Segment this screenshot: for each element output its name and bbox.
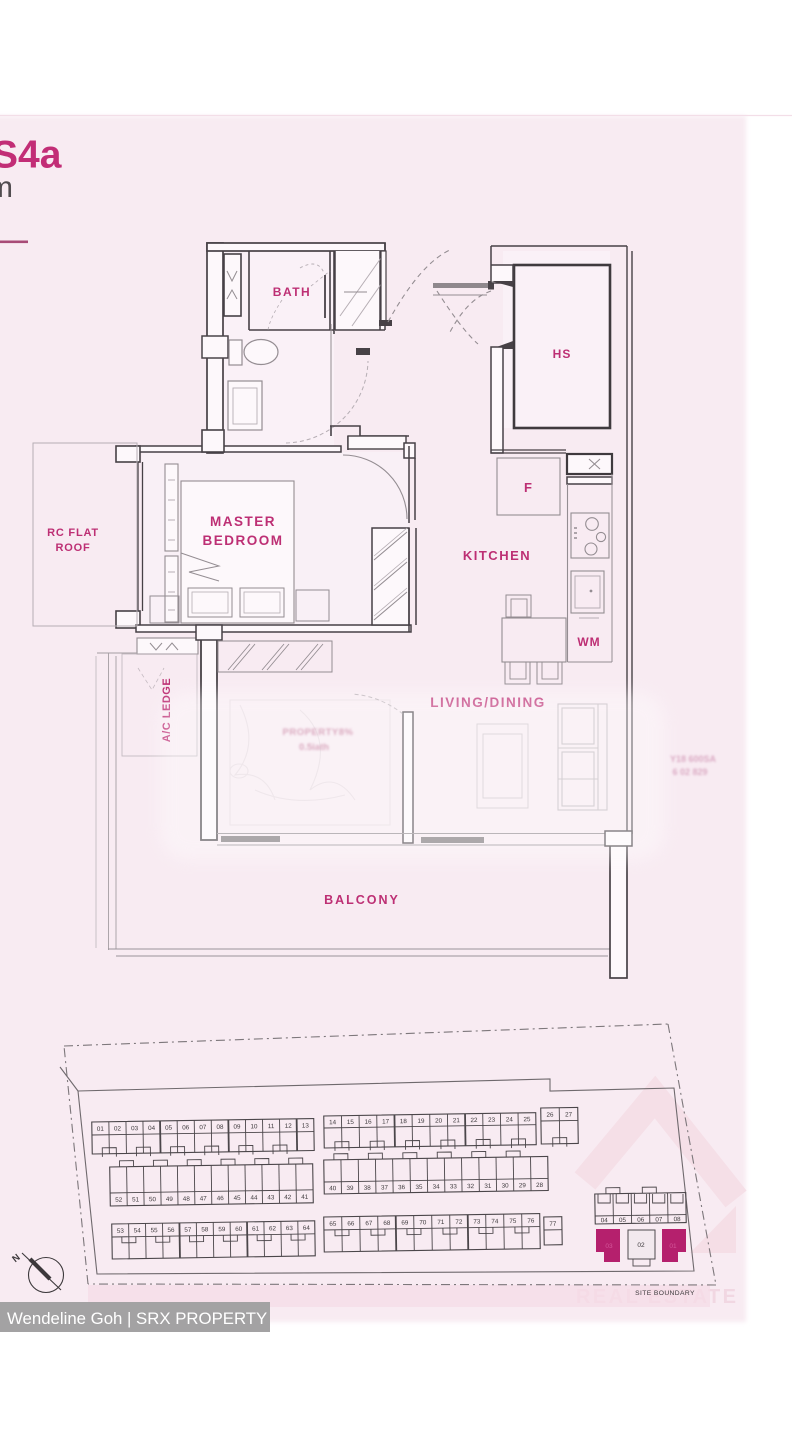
svg-text:56: 56 xyxy=(167,1227,175,1234)
svg-text:09: 09 xyxy=(233,1124,241,1131)
svg-text:40: 40 xyxy=(329,1185,337,1192)
svg-text:SITE BOUNDARY: SITE BOUNDARY xyxy=(635,1290,695,1297)
svg-text:02: 02 xyxy=(114,1125,122,1132)
svg-text:25: 25 xyxy=(523,1116,531,1123)
svg-text:70: 70 xyxy=(419,1219,427,1226)
svg-text:43: 43 xyxy=(267,1194,275,1201)
svg-text:WM: WM xyxy=(577,635,600,649)
svg-text:62: 62 xyxy=(269,1225,277,1232)
svg-text:18: 18 xyxy=(400,1118,408,1125)
svg-text:29: 29 xyxy=(519,1182,527,1189)
svg-text:34: 34 xyxy=(433,1184,441,1191)
svg-text:KITCHEN: KITCHEN xyxy=(463,548,531,563)
svg-text:60: 60 xyxy=(235,1226,243,1233)
svg-text:03: 03 xyxy=(605,1243,613,1250)
svg-text:47: 47 xyxy=(200,1195,208,1202)
svg-text:BALCONY: BALCONY xyxy=(324,893,400,907)
svg-text:64: 64 xyxy=(303,1225,311,1232)
svg-text:57: 57 xyxy=(184,1227,192,1234)
svg-text:Wendeline Goh | SRX PROPERTY: Wendeline Goh | SRX PROPERTY xyxy=(7,1309,267,1328)
svg-text:37: 37 xyxy=(381,1184,389,1191)
svg-text:BEDROOM: BEDROOM xyxy=(203,533,284,548)
svg-text:12: 12 xyxy=(285,1123,293,1130)
svg-text:42: 42 xyxy=(284,1194,292,1201)
svg-text:55: 55 xyxy=(151,1227,159,1234)
svg-text:61: 61 xyxy=(252,1226,260,1233)
svg-text:75: 75 xyxy=(509,1218,517,1225)
svg-text:28: 28 xyxy=(536,1182,544,1189)
svg-text:HS: HS xyxy=(553,347,572,361)
svg-text:46: 46 xyxy=(217,1195,225,1202)
svg-text:01: 01 xyxy=(669,1243,677,1250)
svg-text:33: 33 xyxy=(450,1183,458,1190)
svg-text:63: 63 xyxy=(286,1225,294,1232)
svg-text:11: 11 xyxy=(268,1123,275,1130)
svg-text:74: 74 xyxy=(491,1218,499,1225)
svg-text:07: 07 xyxy=(655,1216,663,1223)
svg-text:53: 53 xyxy=(117,1228,125,1235)
svg-text:08: 08 xyxy=(674,1216,682,1223)
svg-text:36: 36 xyxy=(398,1184,406,1191)
svg-text:41: 41 xyxy=(301,1194,309,1201)
svg-text:MASTER: MASTER xyxy=(210,514,276,529)
svg-text:65: 65 xyxy=(329,1221,337,1228)
svg-text:31: 31 xyxy=(484,1183,492,1190)
svg-text:03: 03 xyxy=(131,1125,139,1132)
svg-text:51: 51 xyxy=(132,1196,140,1203)
svg-text:02: 02 xyxy=(637,1242,645,1249)
svg-text:15: 15 xyxy=(347,1119,355,1126)
svg-text:67: 67 xyxy=(365,1220,373,1227)
svg-text:49: 49 xyxy=(166,1196,174,1203)
svg-text:01: 01 xyxy=(97,1126,105,1133)
svg-text:69: 69 xyxy=(401,1220,409,1227)
svg-text:10: 10 xyxy=(250,1123,258,1130)
svg-text:20: 20 xyxy=(435,1118,443,1125)
svg-text:45: 45 xyxy=(234,1195,242,1202)
svg-text:04: 04 xyxy=(601,1217,609,1224)
svg-text:77: 77 xyxy=(549,1221,557,1228)
svg-text:08: 08 xyxy=(216,1124,224,1131)
svg-text:05: 05 xyxy=(165,1125,173,1132)
svg-text:Y18 600SA: Y18 600SA xyxy=(670,754,717,764)
svg-text:23: 23 xyxy=(488,1117,496,1124)
svg-text:44: 44 xyxy=(250,1195,258,1202)
svg-text:06: 06 xyxy=(182,1124,190,1131)
svg-text:17: 17 xyxy=(382,1118,390,1125)
svg-text:32: 32 xyxy=(467,1183,475,1190)
svg-text:68: 68 xyxy=(383,1220,391,1227)
svg-text:06: 06 xyxy=(637,1217,645,1224)
svg-text:54: 54 xyxy=(134,1227,142,1234)
svg-text:07: 07 xyxy=(199,1124,207,1131)
svg-text:24: 24 xyxy=(506,1116,514,1123)
svg-text:50: 50 xyxy=(149,1196,157,1203)
svg-text:27: 27 xyxy=(565,1111,573,1118)
svg-text:14: 14 xyxy=(329,1119,337,1126)
svg-text:m: m xyxy=(0,171,13,204)
svg-text:38: 38 xyxy=(364,1185,372,1192)
svg-text:BATH: BATH xyxy=(273,285,311,299)
svg-text:52: 52 xyxy=(115,1197,123,1204)
svg-text:16: 16 xyxy=(364,1119,372,1126)
svg-text:26: 26 xyxy=(546,1112,554,1119)
svg-text:21: 21 xyxy=(453,1117,461,1124)
svg-text:73: 73 xyxy=(473,1218,481,1225)
svg-text:F: F xyxy=(524,480,532,495)
svg-text:04: 04 xyxy=(148,1125,156,1132)
svg-text:48: 48 xyxy=(183,1196,191,1203)
svg-text:22: 22 xyxy=(470,1117,478,1124)
svg-text:66: 66 xyxy=(347,1220,355,1227)
svg-text:6 02 829: 6 02 829 xyxy=(672,767,707,777)
svg-text:58: 58 xyxy=(201,1226,209,1233)
svg-text:13: 13 xyxy=(302,1122,310,1129)
svg-text:ROOF: ROOF xyxy=(56,542,91,554)
svg-text:76: 76 xyxy=(527,1218,535,1225)
svg-text:39: 39 xyxy=(346,1185,354,1192)
svg-text:35: 35 xyxy=(415,1184,423,1191)
svg-text:71: 71 xyxy=(437,1219,445,1226)
svg-text:72: 72 xyxy=(455,1219,463,1226)
svg-text:30: 30 xyxy=(502,1182,510,1189)
svg-text:05: 05 xyxy=(619,1217,627,1224)
svg-text:59: 59 xyxy=(218,1226,226,1233)
svg-text:19: 19 xyxy=(417,1118,425,1125)
svg-text:RC FLAT: RC FLAT xyxy=(47,527,99,539)
